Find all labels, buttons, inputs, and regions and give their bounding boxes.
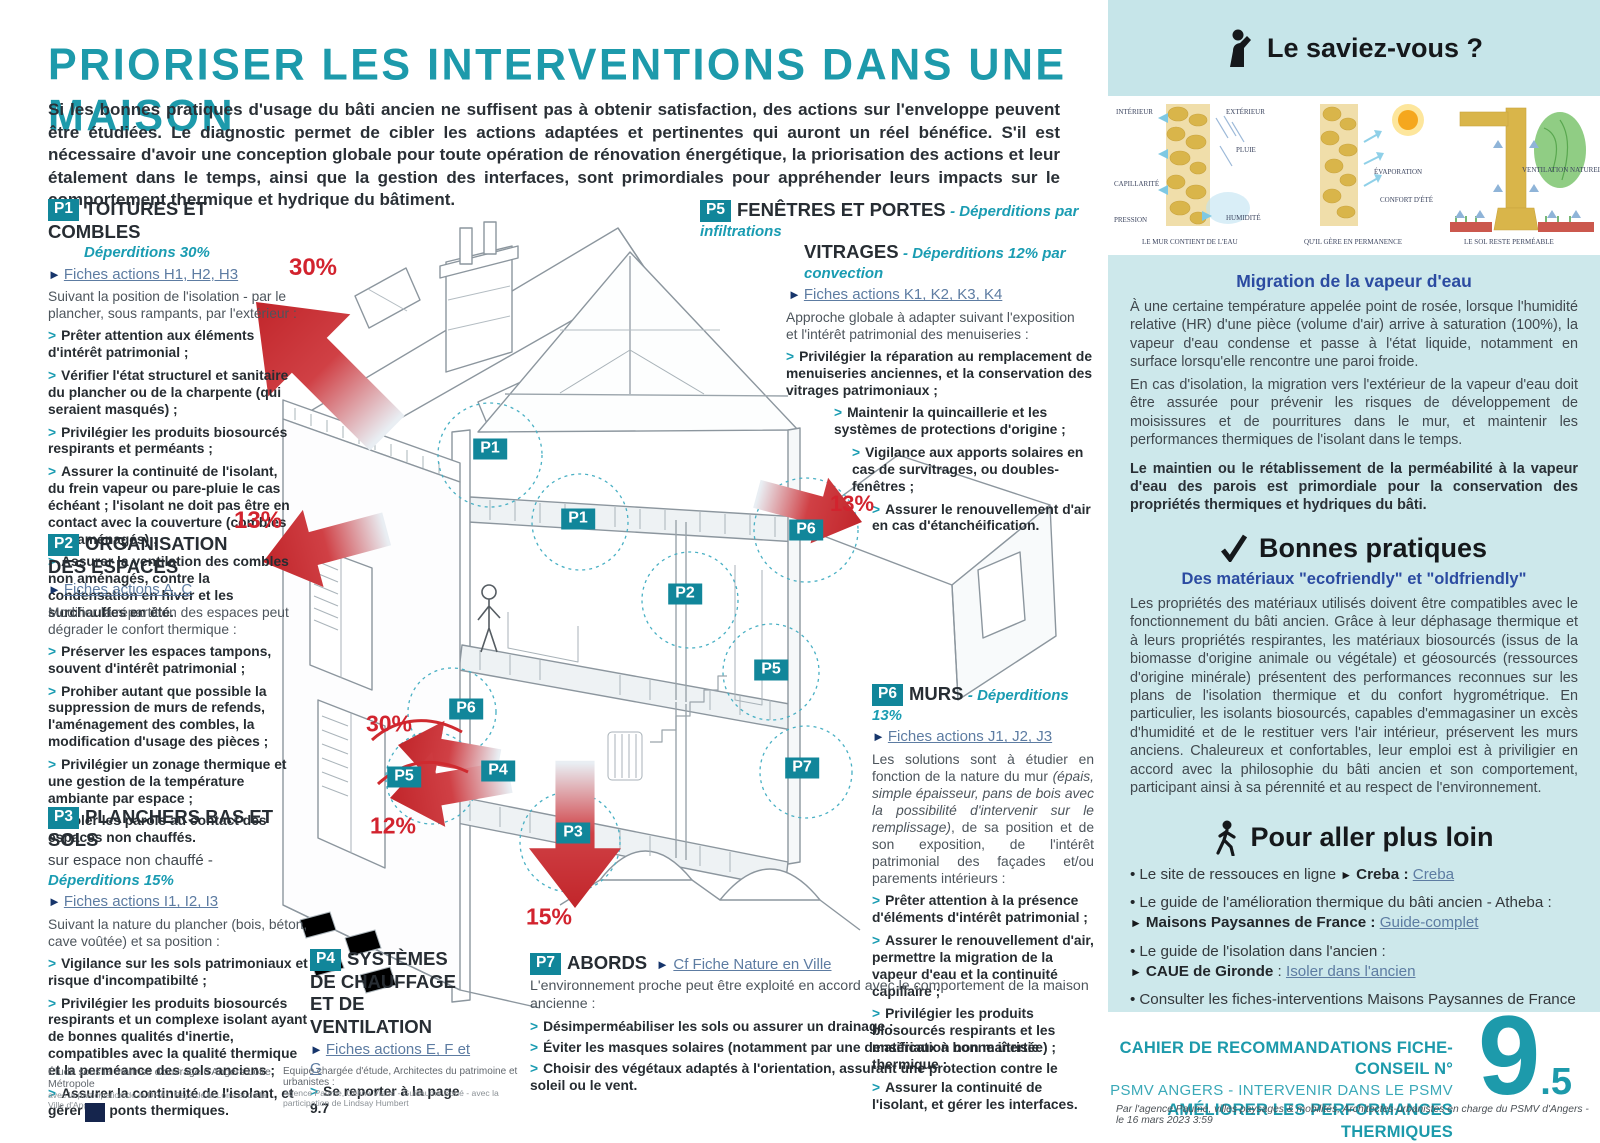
loss-15-floor: 15% xyxy=(526,904,572,931)
migration-bold: Le maintien ou le rétablissement de la p… xyxy=(1130,460,1578,515)
p2-lead: Modifier la répartition des espaces peut… xyxy=(48,604,300,638)
p5-bullet: Maintenir la quincaillerie et les systèm… xyxy=(834,405,1092,439)
sidebar-info-box: Migration de la vapeur d'eau À une certa… xyxy=(1108,255,1600,1012)
migration-para2: En cas d'isolation, la migration vers l'… xyxy=(1130,376,1578,450)
p1-bullet: Vérifier l'état structurel et sanitaire … xyxy=(48,368,298,418)
badge-p1: P1 xyxy=(48,199,79,221)
good-practices-subtitle: Des matériaux "ecofriendly" et "oldfrien… xyxy=(1130,570,1578,589)
p7-fiche-link[interactable]: Cf Fiche Nature en Ville xyxy=(673,956,831,973)
diagram-marker-p6-right: P6 xyxy=(789,520,823,541)
sidebar: Le saviez-vous ? INTÉRIEUR xyxy=(1105,0,1600,1122)
diagram-marker-p1-floor: P1 xyxy=(561,509,595,530)
bullet-icon: • xyxy=(1130,991,1135,1008)
illus-label: PLUIE xyxy=(1236,146,1256,154)
link-arrow-icon: ► xyxy=(788,287,801,302)
further-item: •Le guide de l'amélioration thermique du… xyxy=(1130,893,1578,933)
arrow-icon: ► xyxy=(1130,916,1142,930)
credits-maitrise: Étude sous la maîtrise d'ouvrage d'Anger… xyxy=(48,1066,278,1110)
arrow-icon: ► xyxy=(1340,868,1352,882)
illus-caption: LE SOL RESTE PERMÉABLE xyxy=(1464,238,1554,246)
loss-13-right: 13% xyxy=(830,491,874,517)
p3-lead: Suivant la nature du plancher (bois, bét… xyxy=(48,916,308,950)
link-arrow-icon: ► xyxy=(310,1042,323,1057)
p1-bullet: Prêter attention aux éléments d'intérêt … xyxy=(48,328,298,362)
p3-bullet: Vigilance sur les sols patrimoniaux et r… xyxy=(48,956,308,990)
illus-label: CAPILLARITÉ xyxy=(1114,180,1159,188)
link-arrow-icon: ► xyxy=(48,267,61,282)
p3-subtitle: Déperditions 15% xyxy=(48,872,174,889)
p1-bullet: Privilégier les produits biosourcés resp… xyxy=(48,425,298,459)
further-item: •Le site de ressouces en ligne ►Creba : … xyxy=(1130,865,1578,885)
p7-bullet: Désimperméabiliser les sols ou assurer u… xyxy=(530,1019,1092,1036)
illus-label: INTÉRIEUR xyxy=(1116,108,1153,116)
p7-bullet: Choisir des végétaux adaptés à l'orienta… xyxy=(530,1061,1092,1095)
illus-label: VENTILATION NATURELLE xyxy=(1522,166,1600,174)
good-practices-header: Bonnes pratiques xyxy=(1130,533,1578,564)
p2-bullet: Préserver les espaces tampons, souvent d… xyxy=(48,644,300,678)
section-p2: P2ORGANISATION DES ESPACES ►Fiches actio… xyxy=(48,533,300,853)
p2-bullet: Privilégier un zonage thermique et une g… xyxy=(48,757,300,807)
isoler-ancien-link[interactable]: Isoler dans l'ancien xyxy=(1286,963,1416,980)
link-arrow-icon: ► xyxy=(48,582,61,597)
section-p5: P5FENÊTRES ET PORTES - Déperditions par … xyxy=(700,199,1094,541)
walking-person-icon xyxy=(1214,820,1238,856)
arrow-icon: ► xyxy=(1130,965,1142,979)
p7-lead: L'environnement proche peut être exploit… xyxy=(530,978,1092,1013)
person-raising-hand-icon xyxy=(1225,29,1255,67)
p5-bullet: Assurer le renouvellement d'air en cas d… xyxy=(872,502,1092,536)
p3-fiches-link[interactable]: Fiches actions I1, I2, I3 xyxy=(64,893,218,910)
migration-para1: À une certaine température appelée point… xyxy=(1130,298,1578,372)
p7-bullet: Éviter les masques solaires (notamment p… xyxy=(530,1040,1092,1057)
badge-p4: P4 xyxy=(310,949,341,971)
permeable-soil-illustration: VENTILATION NATURELLE LE SOL RESTE PERMÉ… xyxy=(1450,108,1600,246)
loss-30-windows: 30% xyxy=(366,711,412,738)
go-further-title: Pour aller plus loin xyxy=(1250,822,1493,853)
diagram-marker-p4: P4 xyxy=(481,761,515,782)
illus-label: CONFORT D'ÉTÉ xyxy=(1380,196,1433,204)
footer-credit: Par l'agence Paume, villes paysages & mo… xyxy=(1116,1104,1596,1126)
diagram-marker-p6-left: P6 xyxy=(449,699,483,720)
diagram-marker-p3: P3 xyxy=(556,823,590,844)
p6-fiches-link[interactable]: Fiches actions J1, J2, J3 xyxy=(888,728,1052,745)
link-arrow-icon: ► xyxy=(872,729,885,744)
p5-bullet: Vigilance aux apports solaires en cas de… xyxy=(852,445,1092,495)
wall-evaporation-illustration: ÉVAPORATION CONFORT D'ÉTÉ QU'IL GÈRE EN … xyxy=(1304,104,1433,246)
section-p3-title: PLANCHERS BAS ET SOLS xyxy=(48,806,273,850)
diagram-marker-p5-right: P5 xyxy=(754,660,788,681)
diagram-marker-p1-roof: P1 xyxy=(473,439,507,460)
loss-13-left: 13% xyxy=(234,507,282,535)
p6-lead: Les solutions sont à étudier en fonction… xyxy=(872,751,1094,888)
p5-lead: Approche globale à adapter suivant l'exp… xyxy=(786,309,1088,343)
section-p7: P7ABORDS ► Cf Fiche Nature en Ville L'en… xyxy=(530,952,1092,1098)
badge-p2: P2 xyxy=(48,534,79,556)
creba-link[interactable]: Creba xyxy=(1413,866,1454,883)
did-you-know-title: Le saviez-vous ? xyxy=(1267,33,1483,64)
diagram-marker-p7: P7 xyxy=(785,758,819,779)
p2-fiches-link[interactable]: Fiches actions A, C xyxy=(64,581,192,598)
footer-line2: PSMV ANGERS - INTERVENIR DANS LE PSMV xyxy=(1108,1081,1453,1101)
illus-caption: LE MUR CONTIENT DE L'EAU xyxy=(1142,238,1238,246)
did-you-know-header: Le saviez-vous ? xyxy=(1108,0,1600,96)
logo-fragment xyxy=(85,1103,105,1122)
good-practices-title: Bonnes pratiques xyxy=(1259,533,1487,564)
go-further-header: Pour aller plus loin xyxy=(1130,820,1578,856)
guide-complet-link[interactable]: Guide-complet xyxy=(1380,914,1479,931)
did-you-know-illustrations: INTÉRIEUR EXTÉRIEUR PLUIE CAPILLARITÉ PR… xyxy=(1108,98,1600,254)
section-p5-title: FENÊTRES ET PORTES xyxy=(737,199,946,220)
link-arrow-icon: ► xyxy=(48,894,61,909)
illus-label: ÉVAPORATION xyxy=(1374,168,1422,176)
illus-label: HUMIDITÉ xyxy=(1226,214,1261,222)
link-arrow-icon: ► xyxy=(656,957,669,972)
migration-title: Migration de la vapeur d'eau xyxy=(1130,271,1578,292)
sheet-number: 9.5 xyxy=(1478,1000,1572,1112)
p5-fiches-link[interactable]: Fiches actions K1, K2, K3, K4 xyxy=(804,286,1002,303)
illus-label: PRESSION xyxy=(1114,216,1147,224)
bullet-icon: • xyxy=(1130,943,1135,960)
bullet-icon: • xyxy=(1130,866,1135,883)
section-p5-title2: VITRAGES xyxy=(804,241,899,262)
further-item: •Le guide de l'isolation dans l'ancien :… xyxy=(1130,942,1578,982)
illus-caption: QU'IL GÈRE EN PERMANENCE xyxy=(1304,238,1402,246)
p1-fiches-link[interactable]: Fiches actions H1, H2, H3 xyxy=(64,266,238,283)
section-p1-subtitle: Déperditions 30% xyxy=(84,244,210,261)
diagram-marker-p2: P2 xyxy=(668,584,702,605)
badge-p3: P3 xyxy=(48,807,79,829)
p2-bullet: Prohiber autant que possible la suppress… xyxy=(48,684,300,751)
badge-p7: P7 xyxy=(530,953,561,975)
sheet-footer: CAHIER DE RECOMMANDATIONS FICHE-CONSEIL … xyxy=(1108,1012,1600,1122)
intro-paragraph: Si les bonnes pratiques d'usage du bâti … xyxy=(48,99,1060,212)
check-icon xyxy=(1221,534,1247,562)
badge-p6: P6 xyxy=(872,684,903,706)
credits-equipe: Equipe chargée d'étude, Architectes du p… xyxy=(283,1066,543,1108)
badge-p5: P5 xyxy=(700,200,731,222)
p1-lead: Suivant la position de l'isolation - par… xyxy=(48,288,298,322)
p3-subtitle-plain: sur espace non chauffé - xyxy=(48,852,213,869)
p5-bullet: Privilégier la réparation au remplacemen… xyxy=(786,349,1092,399)
loss-30-roof: 30% xyxy=(289,254,337,282)
bullet-icon: • xyxy=(1130,894,1135,911)
section-p6-title: MURS xyxy=(909,683,963,704)
diagram-marker-p5-left: P5 xyxy=(387,767,421,788)
good-practices-body: Les propriétés des matériaux utilisés do… xyxy=(1130,595,1578,798)
footer-line1: CAHIER DE RECOMMANDATIONS FICHE-CONSEIL … xyxy=(1108,1038,1453,1081)
illus-label: EXTÉRIEUR xyxy=(1226,108,1265,116)
loss-12-windows: 12% xyxy=(370,813,416,840)
wall-water-illustration: INTÉRIEUR EXTÉRIEUR PLUIE CAPILLARITÉ PR… xyxy=(1114,104,1265,246)
section-p7-title: ABORDS xyxy=(567,952,647,973)
p6-bullet: Prêter attention à la présence d'élément… xyxy=(872,893,1094,927)
